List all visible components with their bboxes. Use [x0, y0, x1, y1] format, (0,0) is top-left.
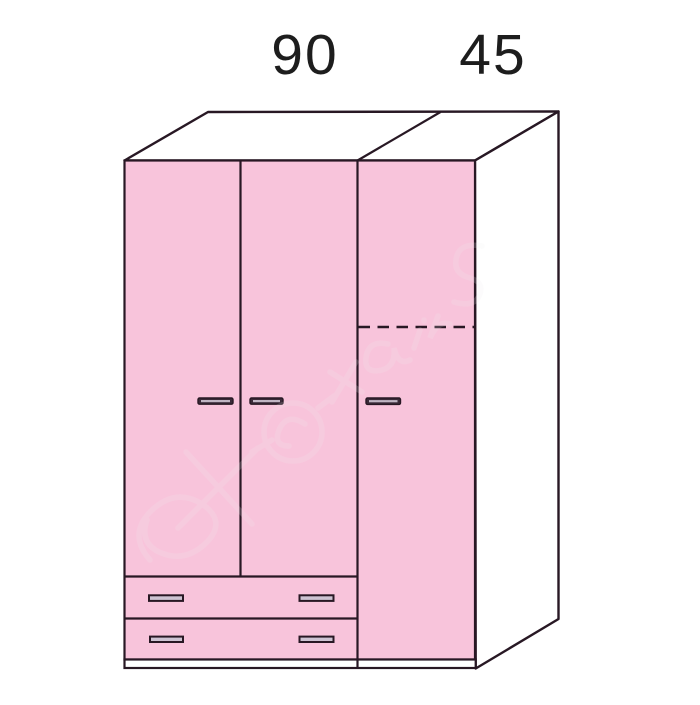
svg-text:45: 45: [459, 23, 526, 87]
svg-text:90: 90: [271, 23, 338, 87]
